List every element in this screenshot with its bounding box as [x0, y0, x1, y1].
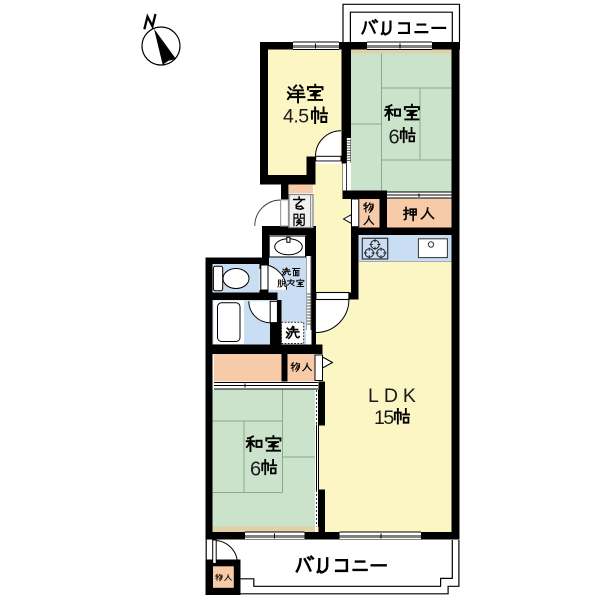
svg-text:6: 6 — [389, 127, 400, 149]
svg-text:4.5: 4.5 — [283, 106, 309, 128]
svg-text:15: 15 — [374, 407, 394, 429]
svg-text:6: 6 — [250, 459, 261, 481]
svg-text:LDK: LDK — [368, 385, 421, 407]
